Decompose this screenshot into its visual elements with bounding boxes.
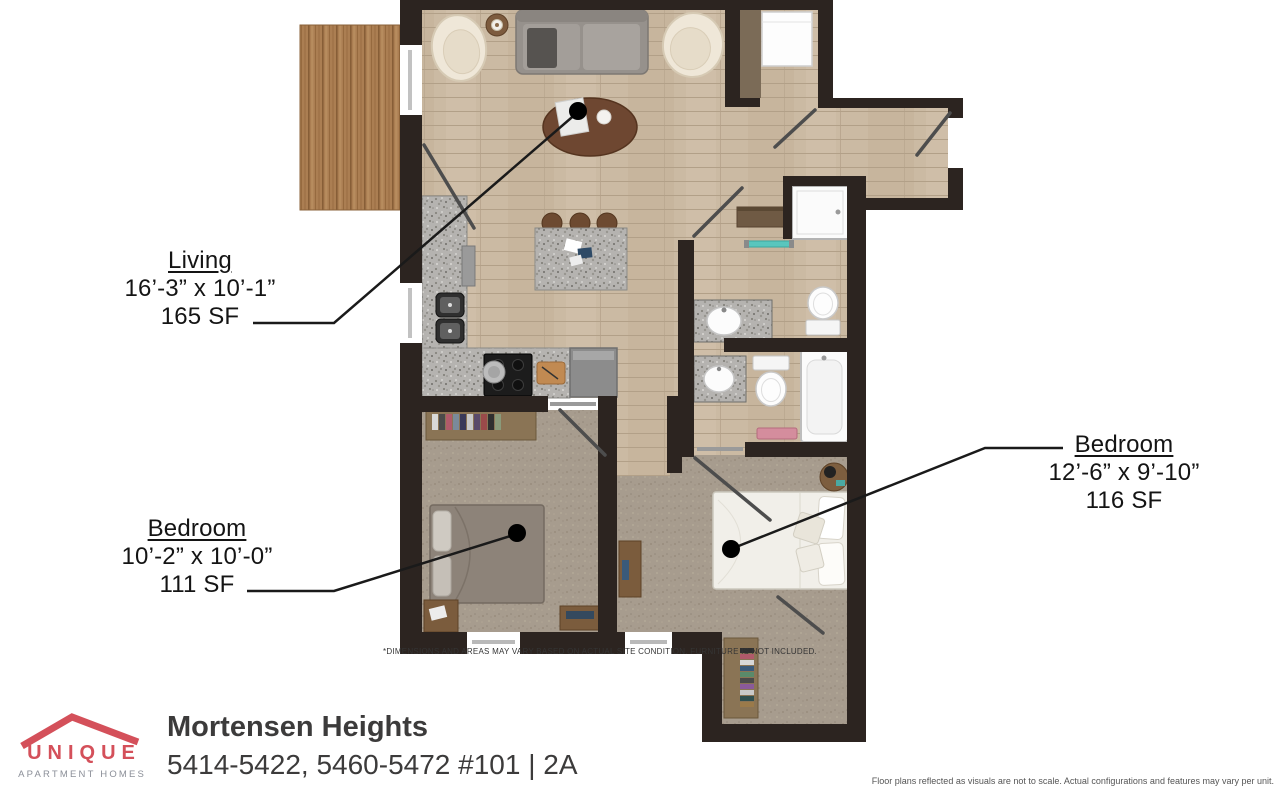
coffee-table (543, 98, 637, 156)
bedroom1-area: 111 SF (82, 571, 312, 599)
bedroom2-side-table (820, 463, 848, 491)
bedroom1-nightstand (424, 600, 458, 632)
label-bedroom1: Bedroom 10’-2” x 10’-0” 111 SF (82, 515, 312, 599)
side-table (486, 14, 508, 36)
bedroom2-name: Bedroom (1009, 431, 1239, 459)
label-living: Living 16’-3” x 10’-1” 165 SF (85, 247, 315, 331)
label-bedroom2: Bedroom 12’-6” x 9’-10” 116 SF (1009, 431, 1239, 515)
stove (483, 354, 532, 396)
kitchen-island (535, 213, 627, 290)
bedroom2-dims: 12’-6” x 9’-10” (1009, 459, 1239, 487)
leader-dot-bedroom1 (508, 524, 526, 542)
property-address: 5414-5422, 5460-5472 #101 | 2A (167, 749, 578, 781)
bedroom1-bed (430, 505, 544, 603)
bedroom1-desk (560, 606, 604, 630)
bath-sink-1 (694, 300, 772, 342)
bath-mat (757, 428, 797, 439)
living-room-area: 165 SF (85, 303, 315, 331)
floor-plan-canvas (0, 0, 1280, 795)
plan-disclaimer: *DIMENSIONS AND AREAS MAY VARY BASED ON … (383, 647, 817, 656)
brand-tagline: APARTMENT HOMES (14, 769, 148, 780)
property-name: Mortensen Heights (167, 711, 428, 744)
cutting-board (537, 362, 565, 384)
shower (792, 186, 848, 239)
bedroom2-area: 116 SF (1009, 487, 1239, 515)
leader-dot-bedroom2 (722, 540, 740, 558)
bedroom1-dims: 10’-2” x 10’-0” (82, 543, 312, 571)
toilet-1 (806, 287, 840, 335)
bath-sink-2 (694, 356, 746, 402)
bedroom1-name: Bedroom (82, 515, 312, 543)
deck (300, 25, 400, 210)
bedroom2-desk (619, 541, 641, 597)
sofa (516, 10, 648, 74)
washer-dryer (762, 12, 812, 66)
footer-legal: Floor plans reflected as visuals are not… (872, 776, 1274, 786)
toilet-2 (753, 356, 789, 406)
bath-shelf (744, 240, 794, 248)
brand-name: UNIQUE (14, 742, 148, 765)
entry-bench (737, 207, 787, 227)
fridge (570, 348, 617, 397)
leader-dot-living (569, 102, 587, 120)
living-room-name: Living (85, 247, 315, 275)
bathtub (801, 350, 848, 442)
living-room-dims: 16’-3” x 10’-1” (85, 275, 315, 303)
